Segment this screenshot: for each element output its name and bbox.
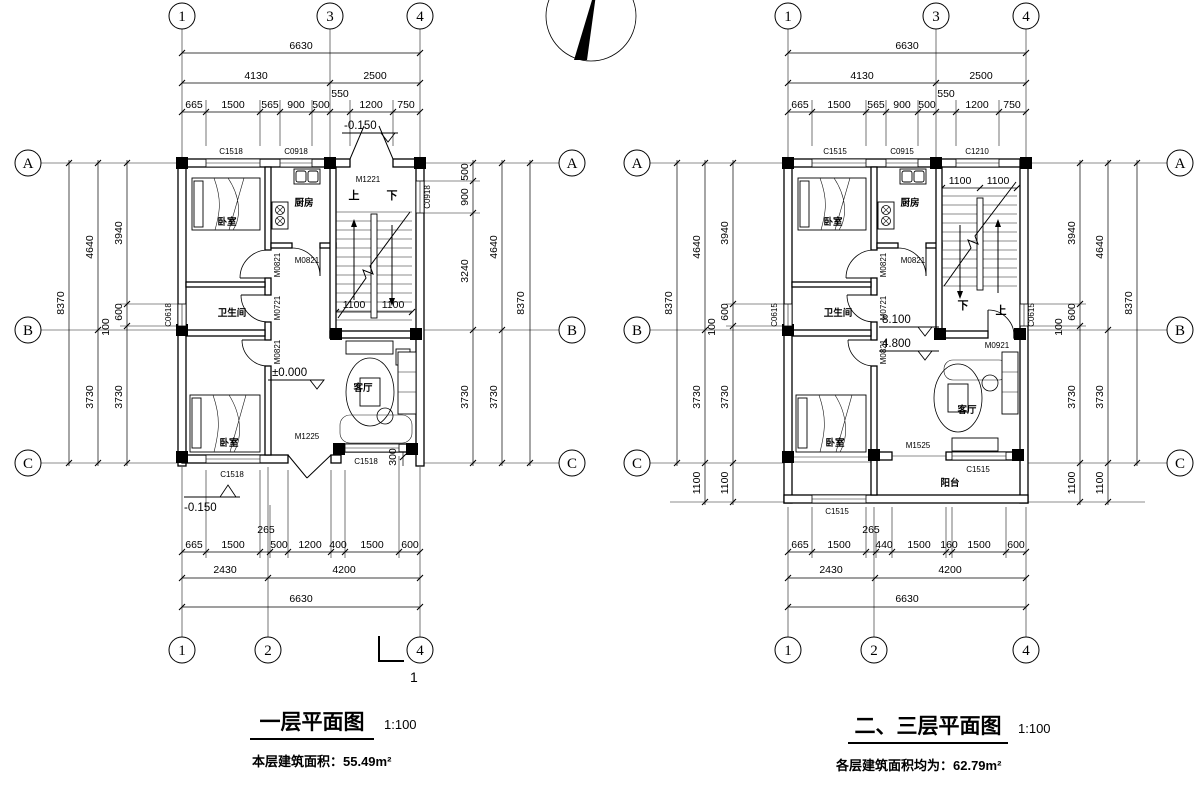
- window-tag: C1518: [220, 470, 244, 479]
- grid-bubble: 4: [1022, 643, 1030, 659]
- grid-bubble: 1: [784, 643, 792, 659]
- grid-bubble: 1: [178, 643, 186, 659]
- door-tag: M0821: [901, 256, 926, 265]
- dim-label: 3730: [1066, 385, 1078, 409]
- room-label: 客厅: [352, 382, 373, 394]
- room-label: 卫生间: [824, 307, 853, 319]
- dim-label: 1500: [907, 539, 931, 551]
- grid-bubble: 4: [416, 9, 424, 25]
- door-tag: M0721: [879, 295, 888, 320]
- dim-label: 1100: [343, 299, 366, 311]
- dim-label: 8370: [1123, 291, 1135, 315]
- window-tag: C0918: [284, 147, 308, 156]
- dim-label: 900: [459, 188, 471, 206]
- dim-label: 265: [257, 524, 275, 536]
- dim-label: 4200: [332, 564, 356, 576]
- grid-bubble: A: [632, 156, 643, 172]
- north-compass-icon: [546, 0, 636, 61]
- level-marks: 8.100 4.800: [879, 314, 939, 360]
- dim-label: 600: [1066, 303, 1078, 321]
- dim-label: 2430: [819, 564, 843, 576]
- door-tag: M0821: [295, 256, 320, 265]
- dim-label: 1200: [298, 539, 322, 551]
- dim-label: 4640: [691, 235, 703, 259]
- dim-label: 1500: [221, 99, 245, 111]
- dim-label: 6630: [289, 40, 313, 52]
- door-tag: M0821: [273, 252, 282, 277]
- dim-label: 6630: [895, 40, 919, 52]
- stair-direction-label: 上: [996, 303, 1007, 317]
- stair-direction-label: 下: [958, 299, 969, 312]
- grid-bubble: A: [1175, 156, 1186, 172]
- dim-label: 550: [331, 88, 349, 100]
- level-label: -0.150: [184, 502, 217, 514]
- grid-bubble: 4: [1022, 9, 1030, 25]
- dim-label: 600: [113, 303, 125, 321]
- dim-label: 4640: [1094, 235, 1106, 259]
- dim-label: 900: [893, 99, 911, 111]
- door-tag: M0821: [879, 339, 888, 364]
- dim-label: 100: [100, 318, 112, 336]
- grid-bubble: C: [632, 456, 642, 472]
- window-tag: C1515: [825, 507, 849, 516]
- dim-label: 1500: [827, 539, 851, 551]
- dim-label: 1500: [360, 539, 384, 551]
- dim-label: 500: [459, 163, 471, 181]
- window-tag: C1518: [354, 457, 378, 466]
- dim-label: 160: [940, 539, 958, 551]
- dim-label: 665: [791, 99, 809, 111]
- room-label: 卫生间: [218, 307, 247, 319]
- plan-scale: 1:100: [1018, 721, 1051, 736]
- dim-label: 440: [875, 539, 893, 551]
- door-tag: M1525: [906, 441, 931, 450]
- grid-bubble: C: [23, 456, 33, 472]
- room-label: 卧室: [825, 437, 845, 449]
- area-note: 本层建筑面积：55.49m²: [252, 754, 392, 769]
- floor-plan-level23: 1 3 4 1 2 4 A B C A B C 6630 4130 2500 6…: [624, 3, 1193, 773]
- dim-label: 550: [937, 88, 955, 100]
- dim-label: 500: [312, 99, 330, 111]
- stair-direction-label: 上: [349, 188, 360, 202]
- grid-bubble: 2: [870, 643, 878, 659]
- dim-label: 750: [397, 99, 415, 111]
- grid-bubble: 3: [932, 9, 940, 25]
- dim-label: 2500: [969, 70, 993, 82]
- dim-label: 2430: [213, 564, 237, 576]
- dim-label: 100: [1053, 318, 1065, 336]
- window-tag: C0615: [1027, 303, 1036, 327]
- dim-label: 3940: [1066, 221, 1078, 245]
- dim-label: 665: [185, 99, 203, 111]
- grid-bubble: 3: [326, 9, 334, 25]
- dim-label: 4130: [850, 70, 874, 82]
- dim-label: 3240: [459, 259, 471, 283]
- stair-direction-label: 下: [387, 189, 398, 202]
- dim-label: 4640: [84, 235, 96, 259]
- window-tag: C0918: [423, 185, 432, 209]
- room-label: 卧室: [219, 437, 239, 449]
- grid-bubble: B: [567, 323, 577, 339]
- dimension-labels: 6630 4130 2500 665 1500 565 900 500 550 …: [55, 40, 527, 605]
- dim-label: 4200: [938, 564, 962, 576]
- grid-bubble: 4: [416, 643, 424, 659]
- window-tag: C1515: [966, 465, 990, 474]
- dim-label: 4640: [488, 235, 500, 259]
- section-number: 1: [410, 669, 418, 685]
- dim-label: 400: [329, 539, 347, 551]
- room-label: 厨房: [294, 197, 313, 209]
- dim-label: 600: [719, 303, 731, 321]
- door-tag: M1221: [356, 175, 381, 184]
- plan-title: 二、三层平面图: [855, 715, 1002, 738]
- dim-label: 6630: [289, 593, 313, 605]
- plan-title: 一层平面图: [260, 711, 365, 734]
- grid-bubble: B: [1175, 323, 1185, 339]
- dim-label: 3730: [84, 385, 96, 409]
- window-tag: C0615: [770, 303, 779, 327]
- dim-label: 1100: [949, 175, 972, 187]
- architectural-drawing-sheet: 1 3 4 1 2 4 A B C A B C 6630 4130 2500 6…: [0, 0, 1199, 796]
- dim-label: 1100: [691, 472, 703, 495]
- dim-label: 8370: [55, 291, 67, 315]
- room-label: 客厅: [956, 404, 977, 416]
- window-tag: C1515: [823, 147, 847, 156]
- dim-label: 565: [867, 99, 885, 111]
- plan1-title-block: 一层平面图 1:100 本层建筑面积：55.49m²: [250, 711, 417, 769]
- dim-label: 665: [185, 539, 203, 551]
- dim-label: 3730: [691, 385, 703, 409]
- grid-bubble: A: [567, 156, 578, 172]
- dim-label: 500: [270, 539, 288, 551]
- dim-label: 3730: [113, 385, 125, 409]
- dim-label: 565: [261, 99, 279, 111]
- grid-bubble: 1: [784, 9, 792, 25]
- room-label: 卧室: [823, 216, 843, 228]
- room-label: 卧室: [217, 216, 237, 228]
- dim-label: 1200: [965, 99, 989, 111]
- door-tag: M0721: [273, 295, 282, 320]
- dim-label: 6630: [895, 593, 919, 605]
- dim-label: 1500: [967, 539, 991, 551]
- dim-label: 600: [401, 539, 419, 551]
- dim-label: 1100: [1094, 472, 1106, 495]
- door-tag: M1225: [295, 432, 320, 441]
- window-tag: C0618: [164, 303, 173, 327]
- dim-label: 8370: [663, 291, 675, 315]
- plan23-title-block: 二、三层平面图 1:100 各层建筑面积均为：62.79m²: [835, 715, 1051, 773]
- dim-label: 1200: [359, 99, 383, 111]
- plan-scale: 1:100: [384, 717, 417, 732]
- dim-label: 2500: [363, 70, 387, 82]
- grid-bubble: B: [632, 323, 642, 339]
- grid-bubble: B: [23, 323, 33, 339]
- room-label: 阳台: [940, 477, 960, 489]
- window-tag: C1210: [965, 147, 989, 156]
- dim-label: 3730: [488, 385, 500, 409]
- dim-label: 750: [1003, 99, 1021, 111]
- dim-label: 1100: [987, 175, 1010, 187]
- room-label: 厨房: [900, 197, 919, 209]
- dim-label: 3730: [1094, 385, 1106, 409]
- dim-label: 665: [791, 539, 809, 551]
- dim-label: 8370: [515, 291, 527, 315]
- floor-plan-level1: 1 3 4 1 2 4 A B C A B C 6630 4130 2500 6…: [15, 3, 585, 769]
- dim-label: 3940: [719, 221, 731, 245]
- window-tag: C0915: [890, 147, 914, 156]
- dim-label: 1100: [719, 472, 731, 495]
- dim-label: 265: [862, 524, 880, 536]
- dim-label: 100: [706, 318, 718, 336]
- door-tag: M0821: [273, 339, 282, 364]
- dim-label: 3940: [113, 221, 125, 245]
- grid-bubble: C: [567, 456, 577, 472]
- dim-label: 4130: [244, 70, 268, 82]
- dim-label: 3730: [459, 385, 471, 409]
- door-tag: M0821: [879, 252, 888, 277]
- grid-bubble: A: [23, 156, 34, 172]
- staircase: [942, 182, 1017, 299]
- door-tag: M0921: [985, 341, 1010, 350]
- dim-label: 1500: [827, 99, 851, 111]
- grid-bubble: 2: [264, 643, 272, 659]
- level-label: ±0.000: [272, 367, 307, 379]
- dim-label: 900: [287, 99, 305, 111]
- dim-label: 1100: [382, 299, 405, 311]
- dim-label: 600: [1007, 539, 1025, 551]
- grid-bubble: 1: [178, 9, 186, 25]
- grid-bubble: C: [1175, 456, 1185, 472]
- dim-label: 3730: [719, 385, 731, 409]
- dim-label: 1500: [221, 539, 245, 551]
- dim-label: 300: [387, 448, 399, 466]
- level-label: -0.150: [344, 120, 377, 132]
- area-note: 各层建筑面积均为：62.79m²: [835, 758, 1002, 773]
- dim-label: 500: [918, 99, 936, 111]
- window-tag: C1518: [219, 147, 243, 156]
- dim-label: 1100: [1066, 472, 1078, 495]
